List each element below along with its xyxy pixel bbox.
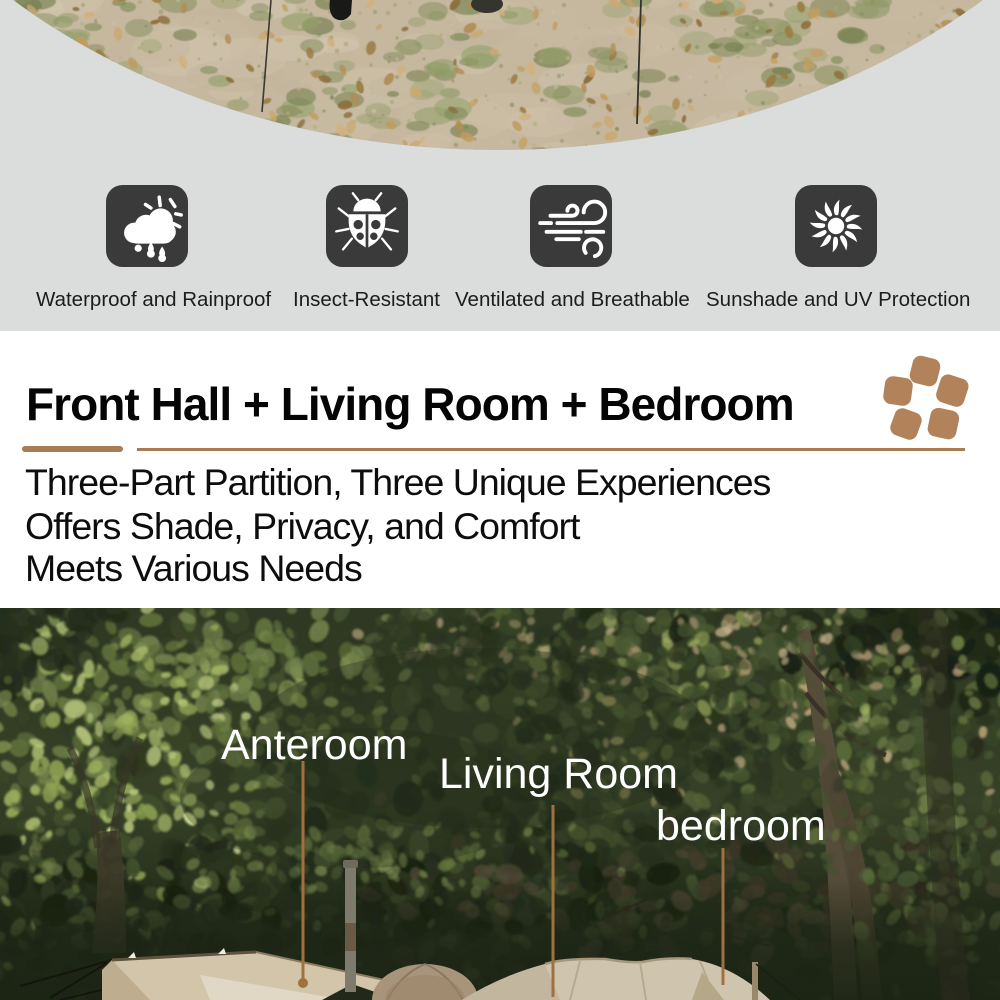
svg-text:bedroom: bedroom [656, 802, 826, 850]
svg-text:Living Room: Living Room [439, 750, 678, 798]
svg-text:Anteroom: Anteroom [221, 721, 407, 769]
